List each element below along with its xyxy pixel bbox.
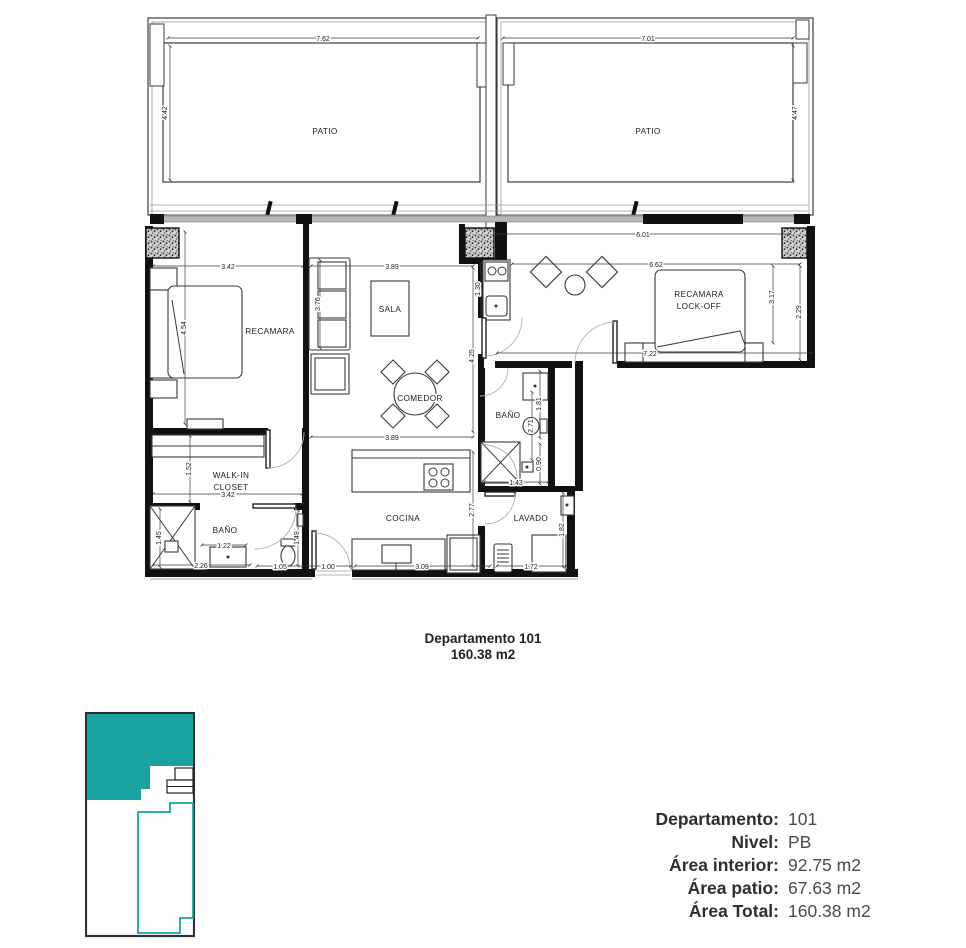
- dim-lockoff-window: 2.29: [796, 305, 803, 319]
- dim-bano2-shower-width: 1.43: [509, 480, 523, 487]
- terrace-edge: [150, 205, 808, 211]
- dim-comedor-width: 3.89: [385, 435, 399, 442]
- patio-door-flags: [265, 201, 638, 216]
- dim-bano1-vanity: 1.22: [217, 543, 231, 550]
- room-label-walkin-2: CLOSET: [213, 483, 248, 492]
- dim-entry: 1.00: [321, 564, 335, 571]
- dim-bano1-shower: 1.45: [156, 531, 163, 545]
- bed-lockoff: [625, 270, 763, 362]
- dim-patio-left-width: 7.62: [316, 36, 330, 43]
- dim-bano1-door: 1.05: [273, 564, 287, 571]
- dim-lockoff-depth: 3.17: [769, 290, 776, 304]
- dim-bano2-shower-depth: 0.90: [536, 457, 543, 471]
- dim-lavado-depth: 1.82: [559, 523, 566, 537]
- dim-kitchenette: 1.30: [475, 282, 482, 296]
- dim-bano2-depth: 2.71: [528, 419, 535, 433]
- summary-value-area-total: 160.38 m2: [788, 902, 910, 921]
- room-label-lavado: LAVADO: [514, 514, 548, 523]
- room-label-cocina: COCINA: [386, 514, 420, 523]
- dim-lockoff-width: 6.62: [649, 262, 663, 269]
- bed-recamara: [150, 268, 242, 429]
- dim-patio-right-depth: 4.47: [792, 106, 799, 120]
- dim-cocina-depth: 2.77: [469, 503, 476, 517]
- lockoff-kitchenette: [483, 260, 510, 320]
- room-label-lockoff-2: LOCK-OFF: [677, 302, 722, 311]
- dim-recamara-width: 3.42: [221, 264, 235, 271]
- dim-closet-width: 3.42: [221, 492, 235, 499]
- dim-wing-total: 7.22: [643, 351, 657, 358]
- structural-columns: [146, 228, 807, 258]
- patio-left: [148, 18, 490, 215]
- room-label-recamara: RECAMARA: [245, 327, 295, 336]
- dim-bano1-width: 2.26: [194, 563, 208, 570]
- summary-label-area-patio: Área patio:: [656, 879, 780, 898]
- room-label-bano-master: BAÑO: [213, 525, 238, 535]
- dim-patio-right-width: 7.01: [641, 36, 655, 43]
- plan-title-name: Departamento 101: [0, 631, 966, 647]
- patio-right: [497, 18, 813, 215]
- walkin-closet-wardrobe: [152, 435, 264, 457]
- summary-value-nivel: PB: [788, 833, 910, 852]
- dim-recamara-depth: 4.54: [181, 321, 188, 335]
- dim-wing-width: 6.01: [636, 232, 650, 239]
- dim-lavado-width: 1.72: [524, 564, 538, 571]
- room-label-bano-lockoff: BAÑO: [496, 410, 521, 420]
- plan-title-area: 160.38 m2: [0, 647, 966, 663]
- dim-bano2-vanity: 1.81: [536, 397, 543, 411]
- patio-divider-wall: [486, 15, 496, 228]
- floorplan-sheet: 7.62 7.01 4.42 4.47 3.42 3.89 6.01 6.62 …: [0, 0, 966, 948]
- sofa: [309, 258, 350, 394]
- summary-value-area-interior: 92.75 m2: [788, 856, 910, 875]
- dim-patio-left-depth: 4.42: [162, 106, 169, 120]
- dim-sofa-length: 3.76: [315, 297, 322, 311]
- summary-label-area-interior: Área interior:: [656, 856, 780, 875]
- locator-map: [85, 712, 195, 938]
- summary-value-departamento: 101: [788, 810, 910, 829]
- dim-living-depth: 4.25: [469, 349, 476, 363]
- room-label-walkin-1: WALK-IN: [213, 471, 250, 480]
- room-label-sala: SALA: [379, 305, 402, 314]
- room-label-comedor: COMEDOR: [397, 394, 443, 403]
- summary-label-area-total: Área Total:: [656, 902, 780, 921]
- kitchen-island: [352, 450, 470, 492]
- bathroom-master-fixtures: [150, 506, 295, 569]
- dim-bano1-depth: 1.49: [294, 531, 301, 545]
- lockoff-sitting-area: [530, 256, 617, 295]
- summary-value-area-patio: 67.63 m2: [788, 879, 910, 898]
- dim-sala-width: 3.89: [385, 264, 399, 271]
- unit-walls: [145, 214, 815, 577]
- plan-title: Departamento 101 160.38 m2: [0, 631, 966, 663]
- dim-closet-depth: 1.52: [186, 462, 193, 476]
- summary-label-nivel: Nivel:: [656, 833, 780, 852]
- summary-label-departamento: Departamento:: [656, 810, 780, 829]
- floor-plan: 7.62 7.01 4.42 4.47 3.42 3.89 6.01 6.62 …: [0, 0, 966, 622]
- dim-cocina-width: 3.09: [415, 564, 429, 571]
- room-label-patio-right: PATIO: [635, 127, 660, 136]
- room-label-patio-left: PATIO: [312, 127, 337, 136]
- room-label-lockoff-1: RECAMARA: [674, 290, 724, 299]
- unit-summary: Departamento: 101 Nivel: PB Área interio…: [656, 810, 911, 921]
